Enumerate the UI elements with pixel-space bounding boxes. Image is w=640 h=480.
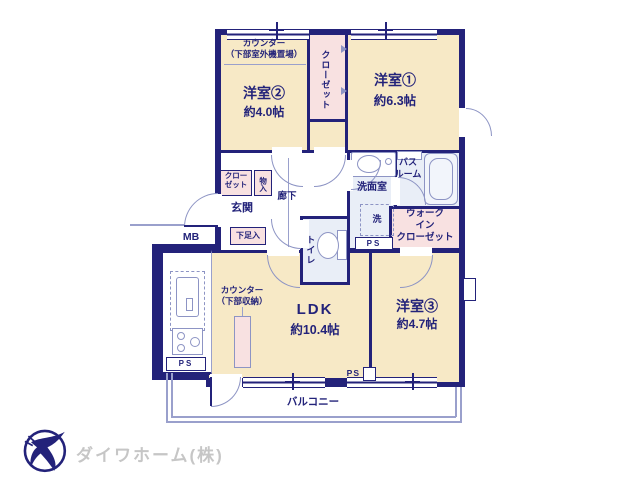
bathroom-label-1: バス [393, 157, 423, 167]
stove-burner-3 [190, 337, 200, 347]
window-ldk-bottom [243, 377, 325, 388]
tick-top-1-v [276, 22, 278, 39]
floorplan: カウンター （下部室外機置場） 洋室② 約4.0帖 クローゼット 洋室① 約6.… [0, 0, 640, 480]
counter-top-label-1: カウンター [222, 39, 306, 49]
room-western3-name: 洋室③ [372, 298, 462, 314]
door-arc-balcony [211, 377, 241, 407]
wic-label-3: クローゼット [386, 233, 464, 244]
mb-label: MB [178, 231, 204, 243]
washroom-label: 洗面室 [342, 182, 402, 194]
genkan-label: 玄関 [212, 202, 272, 215]
ps-ldk-label: PS [330, 369, 360, 379]
toilet-bowl [317, 232, 339, 259]
bathroom-label-2: ルーム [390, 169, 426, 179]
window-western1-top [351, 29, 437, 40]
window-western3-bottom [347, 377, 437, 388]
room-western2-size: 約4.0帖 [221, 106, 307, 120]
vanity-tap [385, 158, 392, 165]
ps-washroom-label: PS [355, 239, 393, 248]
room-western1 [345, 32, 462, 154]
laundry-label: 洗 [362, 214, 392, 224]
room-western3-size: 約4.7帖 [372, 318, 462, 332]
counter-leader-line [242, 307, 243, 316]
balcony-inner-left [171, 373, 173, 417]
kitchen-faucet [186, 298, 193, 311]
toilet-label: トイレ [305, 226, 315, 274]
stove-burner-2 [177, 344, 185, 352]
ps-kitchen-label: PS [166, 359, 206, 368]
balcony-label: バルコニー [283, 396, 343, 408]
balcony-outer-right [460, 387, 462, 422]
kitchen-sink [176, 277, 199, 317]
closet-top-label: クローゼット [320, 44, 330, 116]
closet-small-label-2: ゼット [221, 181, 251, 190]
wic-label-2: イン [390, 221, 460, 232]
tick-bottom-2-h [405, 381, 420, 383]
window-western3-right [463, 278, 476, 301]
balcony-outer-left [166, 373, 168, 422]
logo-mark [18, 424, 70, 476]
ps-box-ldk [363, 367, 376, 381]
bathtub-inner [429, 158, 453, 200]
ldk-counter [234, 316, 251, 368]
tick-top-2-h [378, 29, 393, 31]
balcony-outer-bottom [166, 421, 462, 423]
balcony-inner-bottom [171, 416, 456, 418]
corridor-label: 廊下 [269, 192, 305, 203]
shoe-cabinet-label: 下足入 [230, 231, 266, 240]
room-western1-size: 約6.3帖 [345, 94, 445, 108]
corridor-boundary-line [130, 224, 184, 226]
tick-top-2-v [385, 22, 387, 39]
door-arc-western1-right [466, 108, 492, 136]
balcony-inner-right [455, 387, 457, 417]
tick-top-1-h [269, 29, 284, 31]
counter-kitchen-label-1: カウンター [212, 286, 272, 296]
counter-top-label-2: （下部室外機置場） [214, 50, 314, 60]
closet-door-mark-1 [341, 45, 347, 53]
wic-label-1: ウォーク [390, 209, 460, 220]
company-name: ダイワホーム(株) [76, 441, 224, 466]
room-western2-name: 洋室② [221, 85, 307, 101]
tick-bottom-1-h [285, 381, 300, 383]
room-ldk-size: 約10.4帖 [250, 323, 380, 337]
stove-burner-1 [177, 332, 185, 340]
door-leaf-entrance [184, 225, 218, 227]
room-western1-name: 洋室① [345, 72, 445, 88]
room-ldk-name: LDK [250, 301, 380, 318]
door-leaf-balcony [210, 377, 212, 406]
storage-monoire-label: 物入 [258, 172, 267, 196]
counter-top-line [224, 64, 306, 65]
